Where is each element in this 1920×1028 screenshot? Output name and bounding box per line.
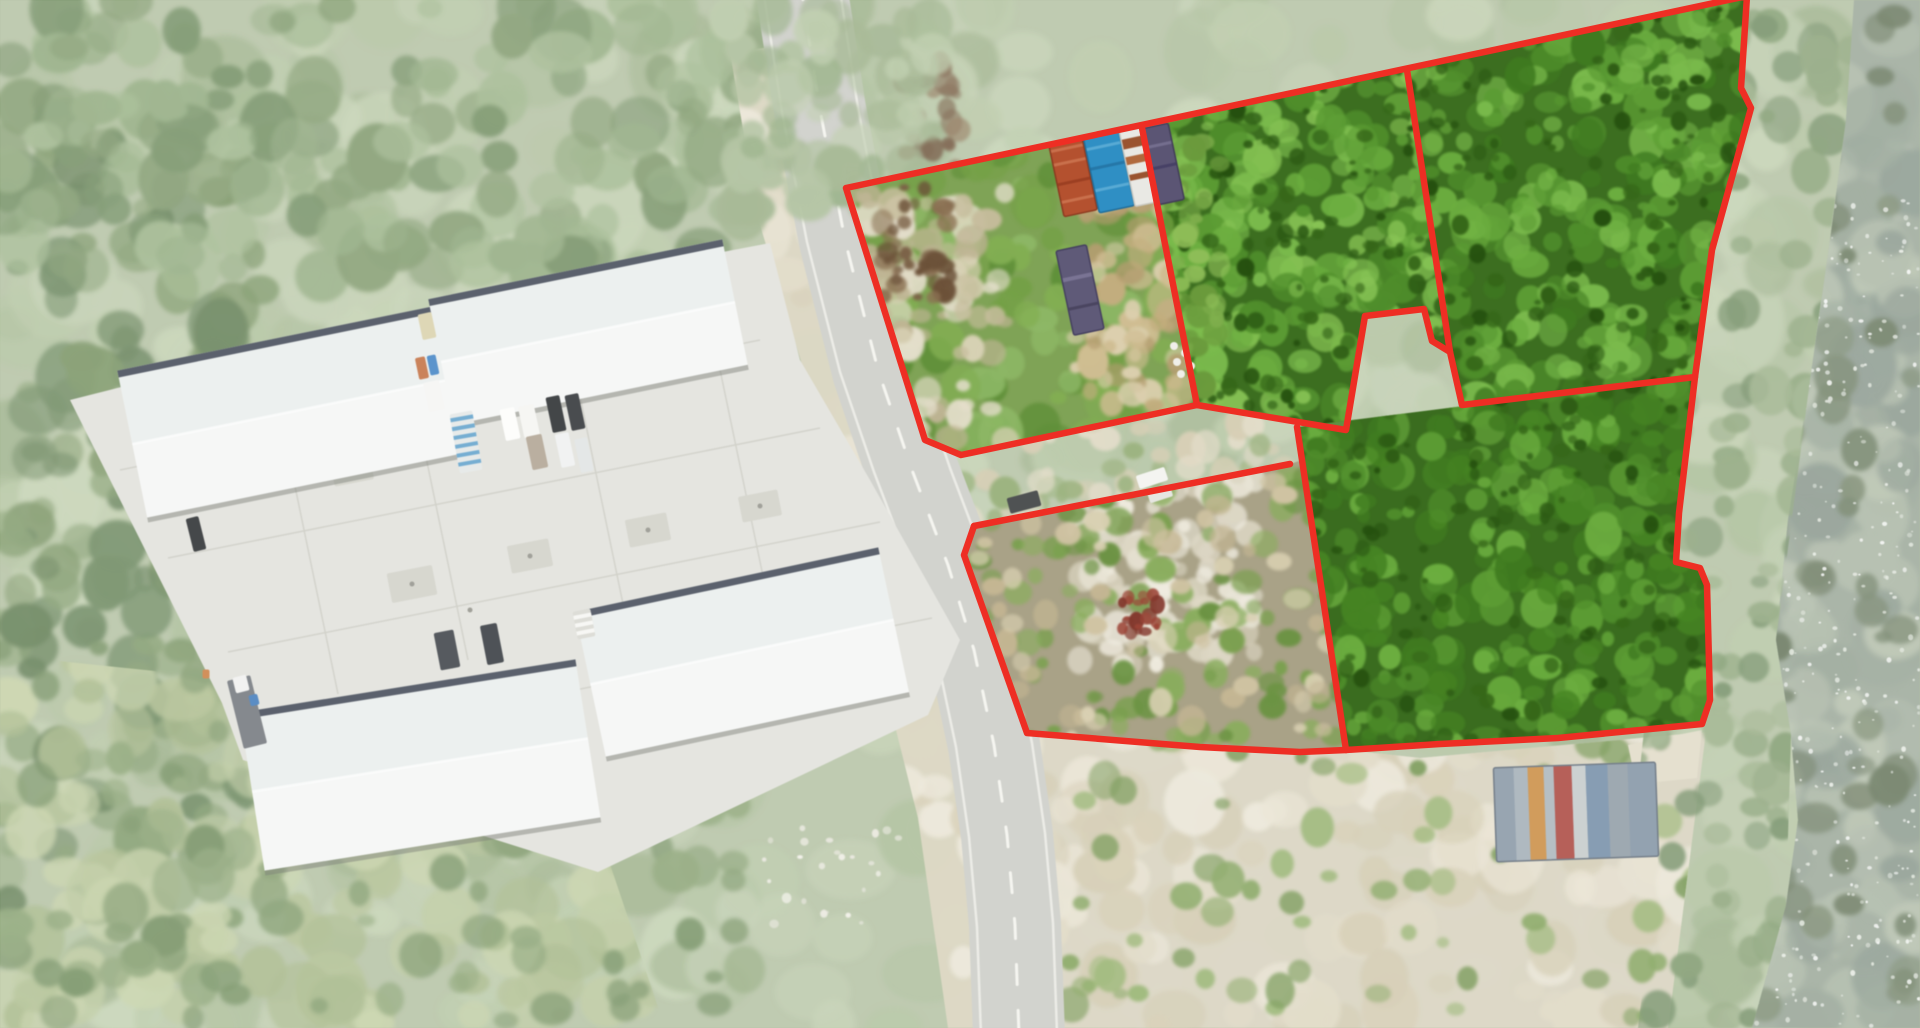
photo-layers (0, 0, 1920, 1028)
aerial-site-photo (0, 0, 1920, 1028)
aerial-photo-canvas (0, 0, 1920, 1028)
